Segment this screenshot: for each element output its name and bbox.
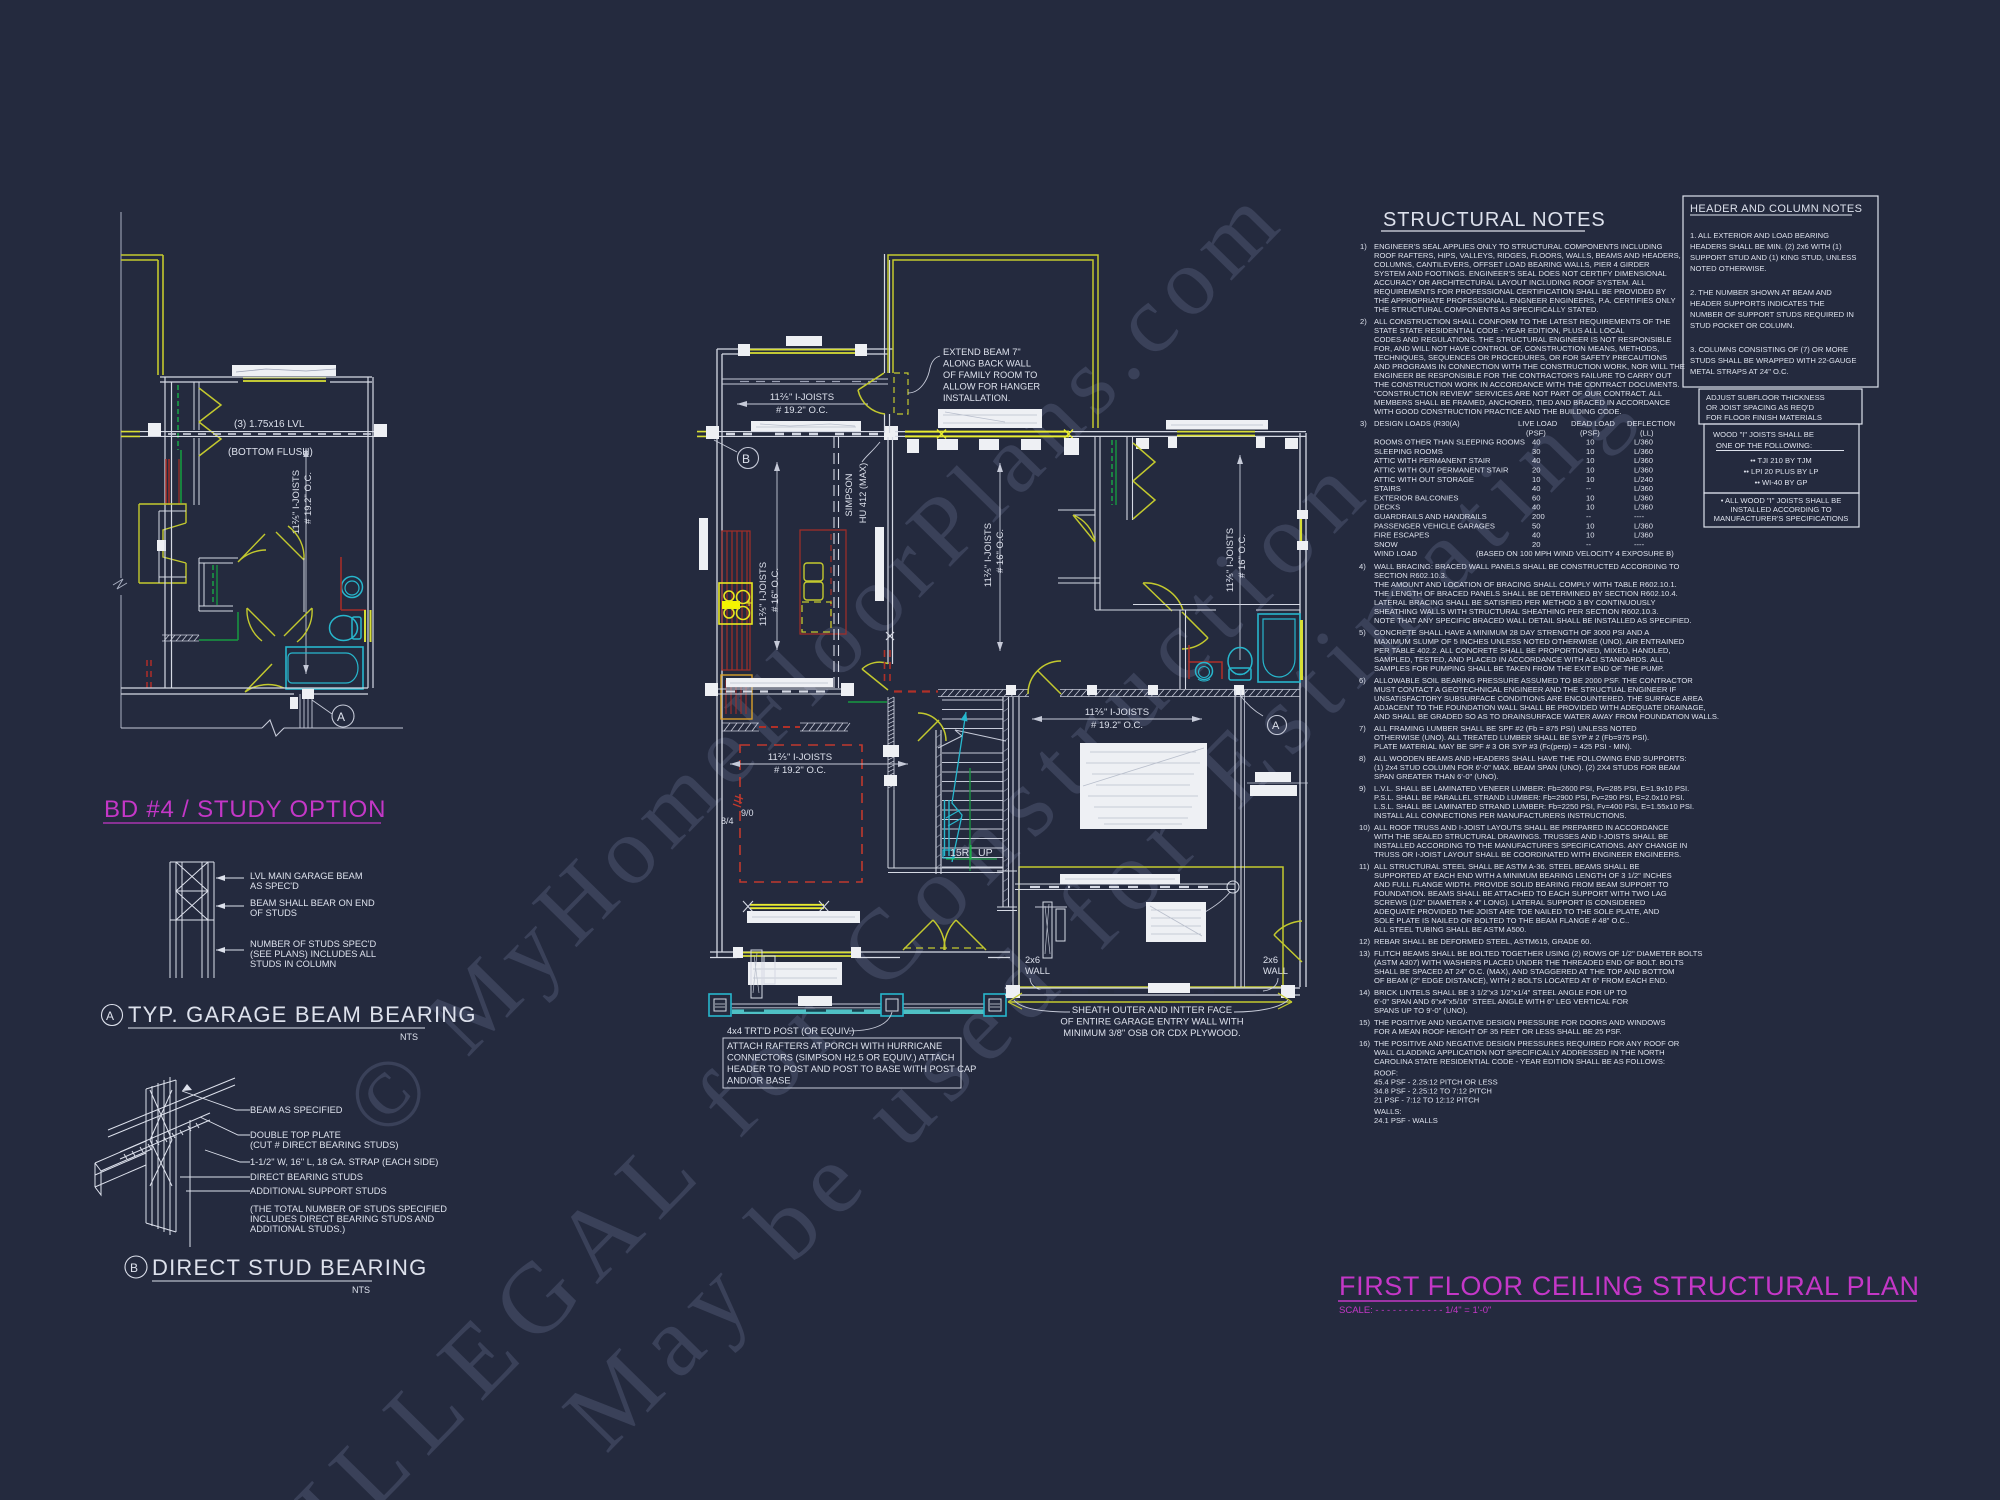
svg-text:24.1 PSF - WALLS: 24.1 PSF - WALLS [1374,1116,1438,1125]
svg-text:# 16" O.C.: # 16" O.C. [995,529,1006,573]
svg-text:STRUCTURAL NOTES: STRUCTURAL NOTES [1383,209,1606,231]
svg-text:SYSTEM AND FOOTINGS. ENGINEER: SYSTEM AND FOOTINGS. ENGINEER'S SEAL DOE… [1374,269,1667,278]
svg-text:L.V.L. SHALL BE LAMINATED VENE: L.V.L. SHALL BE LAMINATED VENEER LUMBER:… [1374,784,1689,793]
svg-text:3. COLUMNS CONSISTING OF (7) O: 3. COLUMNS CONSISTING OF (7) OR MORE [1690,345,1848,354]
svg-text:THE STRUCTURAL COMPONENTS AS S: THE STRUCTURAL COMPONENTS AS SPECIFICALL… [1374,305,1598,314]
svg-text:ACCURACY OR ARCHITECTURAL LAYO: ACCURACY OR ARCHITECTURAL LAYOUT INCLUDI… [1374,278,1645,287]
svg-text:7): 7) [1359,724,1366,733]
svg-text:ALL CONSTRUCTION SHALL CONFORM: ALL CONSTRUCTION SHALL CONFORM TO THE LA… [1374,317,1670,326]
svg-text:30: 30 [1532,447,1540,456]
svg-text:DIRECT STUD BEARING: DIRECT STUD BEARING [152,1255,427,1280]
svg-text:LATERAL BRACING SHALL BE SATIS: LATERAL BRACING SHALL BE SATISFIED PER M… [1374,598,1656,607]
svg-text:ATTIC WITH PERMANENT STAIR: ATTIC WITH PERMANENT STAIR [1374,456,1491,465]
svg-text:B: B [130,1261,138,1275]
svg-text:WIND LOAD: WIND LOAD [1374,549,1418,558]
svg-text:# 19.2" O.C.: # 19.2" O.C. [776,405,828,416]
svg-text:(THE TOTAL NUMBER OF STUDS SPE: (THE TOTAL NUMBER OF STUDS SPECIFIED [250,1204,447,1214]
svg-text:SCREWS (1/2" DIAMETER x 4" LON: SCREWS (1/2" DIAMETER x 4" LONG). LATERA… [1374,898,1646,907]
svg-text:40: 40 [1532,531,1540,540]
svg-text:PER TABLE 402.2. ALL CONCRETE: PER TABLE 402.2. ALL CONCRETE SHALL BE P… [1374,646,1671,655]
svg-text:WALLS:: WALLS: [1374,1107,1402,1116]
svg-text:10: 10 [1586,475,1594,484]
svg-text:2. THE NUMBER SHOWN AT BEAM AN: 2. THE NUMBER SHOWN AT BEAM AND [1690,288,1832,297]
svg-text:L/360: L/360 [1634,484,1653,493]
svg-text:FOR FLOOR FINISH MATERIALS: FOR FLOOR FINISH MATERIALS [1706,413,1822,422]
svg-text:•• LPI 20 PLUS BY LP: •• LPI 20 PLUS BY LP [1744,467,1819,476]
svg-text:ADEQUATE PROVIDED THE JOIST AR: ADEQUATE PROVIDED THE JOIST ARE TOE NAIL… [1374,907,1660,916]
svg-text:2x6: 2x6 [1263,955,1278,965]
svg-text:(LL): (LL) [1640,428,1654,437]
svg-text:OF BEAM (2" EDGE DISTANCE), WI: OF BEAM (2" EDGE DISTANCE), WITH 2 BOLTS… [1374,976,1667,985]
svg-text:DIRECT BEARING STUDS: DIRECT BEARING STUDS [250,1172,363,1182]
svg-text:CONNECTORS (SIMPSON H2.5 OR EQ: CONNECTORS (SIMPSON H2.5 OR EQUIV.) ATTA… [727,1053,954,1063]
svg-text:AND SHALL BE GRADED SO AS TO D: AND SHALL BE GRADED SO AS TO DRAINSURFAC… [1374,712,1719,721]
svg-text:TRUSS OR I-JOIST LAYOUT SHALL: TRUSS OR I-JOIST LAYOUT SHALL BE COORDIN… [1374,850,1681,859]
svg-text:HEADERS SHALL BE MIN. (2) 2x6: HEADERS SHALL BE MIN. (2) 2x6 WITH (1) [1690,242,1842,251]
svg-text:9/0: 9/0 [741,808,754,818]
svg-text:LVL MAIN GARAGE BEAM: LVL MAIN GARAGE BEAM [250,871,363,881]
svg-text:11⅖" I-JOISTS: 11⅖" I-JOISTS [758,562,769,626]
svg-text:FIRE ESCAPES: FIRE ESCAPES [1374,531,1429,540]
svg-text:NOTED OTHERWISE.: NOTED OTHERWISE. [1690,264,1767,273]
svg-text:9): 9) [1359,784,1366,793]
svg-text:WITH THE SEALED STRUCTURAL DRA: WITH THE SEALED STRUCTURAL DRAWINGS. TRU… [1374,832,1668,841]
svg-text:(CUT # DIRECT BEARING STUDS): (CUT # DIRECT BEARING STUDS) [250,1140,398,1150]
svg-text:A: A [337,710,345,724]
svg-text:45.4 PSF - 2.25:12 PITCH OR LE: 45.4 PSF - 2.25:12 PITCH OR LESS [1374,1078,1498,1087]
svg-text:3): 3) [1360,419,1367,428]
svg-text:13): 13) [1359,949,1370,958]
svg-text:ATTACH RAFTERS AT PORCH WITH H: ATTACH RAFTERS AT PORCH WITH HURRICANE [727,1041,942,1051]
svg-text:60: 60 [1532,493,1540,502]
svg-text:10: 10 [1532,475,1540,484]
svg-text:L/360: L/360 [1634,503,1653,512]
svg-text:21 PSF - 7:12 TO 12:12 PITCH: 21 PSF - 7:12 TO 12:12 PITCH [1374,1096,1479,1105]
svg-text:NTS: NTS [352,1285,370,1295]
svg-text:11⅖" I-JOISTS: 11⅖" I-JOISTS [983,523,994,587]
svg-text:METAL STRAPS AT 24" O.C.: METAL STRAPS AT 24" O.C. [1690,367,1789,376]
svg-text:L/360: L/360 [1634,447,1653,456]
svg-text:ENGINEER BE RESPONSIBLE FOR TH: ENGINEER BE RESPONSIBLE FOR THE CONTRACT… [1374,371,1672,380]
svg-text:HU 412 (MAX): HU 412 (MAX) [858,463,868,523]
svg-text:L/360: L/360 [1634,466,1653,475]
svg-text:WALL: WALL [1025,966,1050,976]
svg-text:(PSF): (PSF) [1580,428,1600,437]
svg-text:SAMPLES FOR PUMPING SHALL BE T: SAMPLES FOR PUMPING SHALL BE TAKEN FROM … [1374,664,1664,673]
svg-text:MUST CONTACT A GEOTECHNICAL EN: MUST CONTACT A GEOTECHNICAL ENGINEER AND… [1374,685,1677,694]
svg-text:(BOTTOM FLUSH): (BOTTOM FLUSH) [228,447,313,458]
svg-text:STUDS IN COLUMN: STUDS IN COLUMN [250,959,336,969]
svg-text:L/240: L/240 [1634,475,1653,484]
svg-text:SCALE: - - - - - - - - - - -: SCALE: - - - - - - - - - - - - 1/4" = 1'… [1339,1305,1491,1316]
svg-text:DOUBLE TOP PLATE: DOUBLE TOP PLATE [250,1130,341,1140]
svg-text:(SEE PLANS) INCLUDES ALL: (SEE PLANS) INCLUDES ALL [250,949,376,959]
svg-text:ALL WOODEN BEAMS AND HEADERS S: ALL WOODEN BEAMS AND HEADERS SHALL HAVE … [1374,754,1687,763]
svg-text:11⅖" I-JOISTS: 11⅖" I-JOISTS [770,392,834,403]
svg-text:BRICK LINTELS SHALL BE 3 1/2"x: BRICK LINTELS SHALL BE 3 1/2"x3 1/2"x1/4… [1374,988,1627,997]
svg-text:--: -- [1586,484,1592,493]
svg-text:NOTE THAT ANY SPECIFIC BRACED: NOTE THAT ANY SPECIFIC BRACED WALL DETAI… [1374,616,1691,625]
svg-text:INSTALLED ACCORDING TO: INSTALLED ACCORDING TO [1730,505,1831,514]
svg-text:----: ---- [1634,512,1645,521]
svg-text:ATTIC WITH OUT STORAGE: ATTIC WITH OUT STORAGE [1374,475,1474,484]
svg-text:----: ---- [1634,540,1645,549]
svg-text:SHALL BE SPACED AT 24" O.C. (M: SHALL BE SPACED AT 24" O.C. (MAX), AND S… [1374,967,1674,976]
svg-text:HEADER TO POST AND POST TO BAS: HEADER TO POST AND POST TO BASE WITH POS… [727,1064,976,1074]
svg-text:# 19.2" O.C.: # 19.2" O.C. [774,765,826,776]
svg-text:15): 15) [1359,1018,1370,1027]
svg-text:11⅖" I-JOISTS: 11⅖" I-JOISTS [768,752,832,763]
svg-text:UNSATISFACTORY SUBSURFACE COND: UNSATISFACTORY SUBSURFACE CONDITIONS ARE… [1374,694,1704,703]
svg-text:1. ALL EXTERIOR AND LOAD BEARI: 1. ALL EXTERIOR AND LOAD BEARING [1690,231,1829,240]
svg-text:INCLUDES DIRECT BEARING STUDS: INCLUDES DIRECT BEARING STUDS AND [250,1214,435,1224]
svg-text:GUARDRAILS AND HANDRAILS: GUARDRAILS AND HANDRAILS [1374,512,1487,521]
svg-text:40: 40 [1532,438,1540,447]
svg-text:INSTALLATION.: INSTALLATION. [943,393,1010,403]
svg-text:20: 20 [1532,466,1540,475]
svg-text:INSTALL ALL CONNECTIONS PER MA: INSTALL ALL CONNECTIONS PER MANUFACTURER… [1374,811,1626,820]
svg-text:ROOMS OTHER THAN SLEEPING ROOM: ROOMS OTHER THAN SLEEPING ROOMS [1374,438,1525,447]
svg-text:# 19.2" O.C.: # 19.2" O.C. [1091,720,1143,731]
svg-text:11⅖" I-JOISTS: 11⅖" I-JOISTS [1225,528,1236,592]
svg-text:AS SPEC'D: AS SPEC'D [250,881,299,891]
svg-text:SECTION R602.10.3.: SECTION R602.10.3. [1374,571,1447,580]
svg-text:HEADER SUPPORTS INDICATES THE: HEADER SUPPORTS INDICATES THE [1690,299,1825,308]
svg-text:4): 4) [1359,562,1366,571]
svg-text:34.8 PSF - 2.25:12 TO 7:12 PIT: 34.8 PSF - 2.25:12 TO 7:12 PITCH [1374,1087,1492,1096]
svg-text:A: A [106,1009,114,1023]
svg-text:"CONSTRUCTION REVIEW" SERVICES: "CONSTRUCTION REVIEW" SERVICES ARE NOT P… [1374,389,1662,398]
svg-text:ALONG BACK WALL: ALONG BACK WALL [943,359,1031,369]
svg-text:(1) 2x4 STUD COLUMN FOR 6'-0": (1) 2x4 STUD COLUMN FOR 6'-0" MAX. BEAM … [1374,763,1680,772]
svg-text:UP: UP [978,847,993,859]
svg-text:THE AMOUNT AND LOCATION OF BRA: THE AMOUNT AND LOCATION OF BRACING SHALL… [1374,580,1677,589]
svg-text:STUD POCKET OR COLUMN.: STUD POCKET OR COLUMN. [1690,321,1795,330]
svg-text:WALL CLADDING APPLICATION NOT: WALL CLADDING APPLICATION NOT SPECIFICAL… [1374,1048,1665,1057]
svg-text:FLITCH BEAMS SHALL BE BOLTED T: FLITCH BEAMS SHALL BE BOLTED TOGETHER US… [1374,949,1702,958]
svg-text:6'-0" SPAN AND 6"x4"x5/16" STE: 6'-0" SPAN AND 6"x4"x5/16" STEEL ANGLE W… [1374,997,1629,1006]
svg-text:(PSF): (PSF) [1526,428,1546,437]
svg-text:THE POSITIVE AND NEGATIVE DESI: THE POSITIVE AND NEGATIVE DESIGN PRESSUR… [1374,1018,1665,1027]
svg-text:ALL ROOF TRUSS AND I-JOIST LAY: ALL ROOF TRUSS AND I-JOIST LAYOUTS SHALL… [1374,823,1669,832]
svg-text:NTS: NTS [400,1032,418,1042]
svg-text:# 16" O.C.: # 16" O.C. [1237,534,1248,578]
svg-text:20: 20 [1532,540,1540,549]
svg-text:SNOW: SNOW [1374,540,1398,549]
svg-text:WALL: WALL [1263,966,1288,976]
svg-text:•• WI-40 BY GP: •• WI-40 BY GP [1755,478,1808,487]
svg-text:1): 1) [1360,242,1367,251]
svg-text:CODES AND REGULATIONS. THE STR: CODES AND REGULATIONS. THE STRUCTURAL EN… [1374,335,1672,344]
svg-text:COLUMNS, CANTILEVERS, OFFSET L: COLUMNS, CANTILEVERS, OFFSET LOAD BEARIN… [1374,260,1650,269]
svg-text:10): 10) [1359,823,1370,832]
svg-text:CAROLINA STATE RESIDENTIAL COD: CAROLINA STATE RESIDENTIAL CODE - YEAR E… [1374,1057,1665,1066]
svg-text:L/360: L/360 [1634,438,1653,447]
svg-text:ROOF RAFTERS, HIPS, VALLEYS, R: ROOF RAFTERS, HIPS, VALLEYS, RIDGES, FLO… [1374,251,1681,260]
svg-text:BEAM AS SPECIFIED: BEAM AS SPECIFIED [250,1105,343,1115]
svg-text:4x4 TRT'D POST (OR EQUIV.): 4x4 TRT'D POST (OR EQUIV.) [727,1026,855,1036]
svg-text:15R: 15R [950,847,970,859]
svg-text:L/360: L/360 [1634,456,1653,465]
svg-text:STATE STATE RESIDENTIAL CODE -: STATE STATE RESIDENTIAL CODE - YEAR EDIT… [1374,326,1625,335]
svg-text:L/360: L/360 [1634,531,1653,540]
svg-text:ALL STRUCTURAL STEEL SHALL BE: ALL STRUCTURAL STEEL SHALL BE ASTM A-36.… [1374,862,1639,871]
svg-text:THE CONSTRUCTION WORK IN ACCOR: THE CONSTRUCTION WORK IN ACCORDANCE WITH… [1374,380,1680,389]
svg-text:WITH GOOD CONSTRUCTION PRACTIC: WITH GOOD CONSTRUCTION PRACTICE AND THE … [1374,407,1622,416]
svg-text:10: 10 [1586,521,1594,530]
svg-text:ADDITIONAL STUDS.): ADDITIONAL STUDS.) [250,1224,345,1234]
svg-text:MEMBERS SHALL BE FRAMED, ANCHO: MEMBERS SHALL BE FRAMED, ANCHORED, TIED … [1374,398,1670,407]
svg-text:FIRST FLOOR CEILING STRUCTURAL: FIRST FLOOR CEILING STRUCTURAL PLAN [1339,1271,1920,1301]
svg-text:40: 40 [1532,503,1540,512]
svg-text:12): 12) [1359,937,1370,946]
svg-text:L/360: L/360 [1634,521,1653,530]
svg-text:AND FULL FLANGE WIDTH. PROVIDE: AND FULL FLANGE WIDTH. PROVIDE SOLID BEA… [1374,880,1669,889]
svg-text:THE POSITIVE AND NEGATIVE DESI: THE POSITIVE AND NEGATIVE DESIGN PRESSUR… [1374,1039,1680,1048]
svg-text:(BASED ON 100 MPH WIND VELOCIT: (BASED ON 100 MPH WIND VELOCITY 4 EXPOSU… [1476,549,1674,558]
svg-text:(3) 1.75x16 LVL: (3) 1.75x16 LVL [234,419,305,430]
svg-text:11⅖" I-JOISTS: 11⅖" I-JOISTS [291,470,302,534]
svg-text:--: -- [1586,540,1592,549]
svg-text:ENGINEER'S SEAL APPLIES ONLY T: ENGINEER'S SEAL APPLIES ONLY TO STRUCTUR… [1374,242,1663,251]
svg-text:1-1/2" W, 16" L, 18 GA. STRAP: 1-1/2" W, 16" L, 18 GA. STRAP (EACH SIDE… [250,1157,438,1167]
svg-text:SOLE PLATE IS NAILED OR BOLTED: SOLE PLATE IS NAILED OR BOLTED TO THE BE… [1374,916,1629,925]
svg-text:6): 6) [1359,676,1366,685]
svg-text:40: 40 [1532,484,1540,493]
svg-text:16): 16) [1359,1039,1370,1048]
svg-text:--: -- [1586,512,1592,521]
svg-text:2x6: 2x6 [1025,955,1040,965]
svg-text:WALL BRACING: BRACED WALL PAN: WALL BRACING: BRACED WALL PANELS SHALL B… [1374,562,1679,571]
svg-text:(ASTM A307) WITH WASHERS PLACE: (ASTM A307) WITH WASHERS PLACED UNDER TH… [1374,958,1684,967]
svg-text:# 16" O.C.: # 16" O.C. [770,568,781,612]
svg-text:SPAN GREATER THAN 6'-0" (UNO).: SPAN GREATER THAN 6'-0" (UNO). [1374,772,1498,781]
svg-text:WOOD "I" JOISTS SHALL BE: WOOD "I" JOISTS SHALL BE [1713,430,1814,439]
svg-text:TECHNIQUES, SEQUENCES OR PROCE: TECHNIQUES, SEQUENCES OR PROCEDURES, OR … [1374,353,1667,362]
svg-text:THE LENGTH OF BRACED PANELS SH: THE LENGTH OF BRACED PANELS SHALL BE DET… [1374,589,1678,598]
svg-text:11): 11) [1359,862,1370,871]
svg-text:INSTALLED ACCORDING TO THE MAN: INSTALLED ACCORDING TO THE MANUFACTURE'S… [1374,841,1687,850]
svg-text:HEADER AND COLUMN NOTES: HEADER AND COLUMN NOTES [1690,203,1862,215]
svg-text:SLEEPING ROOMS: SLEEPING ROOMS [1374,447,1443,456]
svg-text:L.S.L. SHALL BE LAMINATED STRA: L.S.L. SHALL BE LAMINATED STRAND LUMBER:… [1374,802,1694,811]
svg-text:50: 50 [1532,521,1540,530]
svg-text:FOUNDATION. BEAMS SHALL BE AT: FOUNDATION. BEAMS SHALL BE ATTACHED TO E… [1374,889,1667,898]
svg-text:FOR, AND WILL NOT HAVE CONTROL: FOR, AND WILL NOT HAVE CONTROL OF, CONST… [1374,344,1659,353]
svg-text:SPANS UP TO 9'-0" (UNO).: SPANS UP TO 9'-0" (UNO). [1374,1006,1467,1015]
svg-text:DEFLECTION: DEFLECTION [1627,419,1675,428]
svg-text:REBAR SHALL BE DEFORMED STEEL,: REBAR SHALL BE DEFORMED STEEL, ASTM615, … [1374,937,1591,946]
svg-text:10: 10 [1586,438,1594,447]
svg-text:OF FAMILY ROOM TO: OF FAMILY ROOM TO [943,370,1037,380]
svg-text:OR JOIST SPACING AS REQ'D: OR JOIST SPACING AS REQ'D [1706,403,1814,412]
svg-text:2): 2) [1360,317,1367,326]
svg-text:•• TJI 210 BY TJM: •• TJI 210 BY TJM [1750,456,1811,465]
svg-text:EXTERIOR BALCONIES: EXTERIOR BALCONIES [1374,493,1458,502]
svg-text:THE APPROPRIATE PROFESSIONAL.: THE APPROPRIATE PROFESSIONAL. ENGNEER EN… [1374,296,1676,305]
svg-text:OTHERWISE (UNO). ALL TREATED L: OTHERWISE (UNO). ALL TREATED LUMBER SHAL… [1374,733,1649,742]
svg-text:• ALL WOOD "I" JOISTS SHALL BE: • ALL WOOD "I" JOISTS SHALL BE [1721,496,1842,505]
svg-text:SHEATHING WALLS WITH STRUCTURA: SHEATHING WALLS WITH STRUCTURAL SHEATHIN… [1374,607,1658,616]
svg-text:ROOF:: ROOF: [1374,1069,1398,1078]
svg-text:NUMBER OF SUPPORT STUDS REQUIR: NUMBER OF SUPPORT STUDS REQUIRED IN [1690,310,1854,319]
svg-text:11⅖" I-JOISTS: 11⅖" I-JOISTS [1085,707,1149,718]
svg-text:10: 10 [1586,466,1594,475]
svg-text:ADJACENT TO THE FOUNDATION WAL: ADJACENT TO THE FOUNDATION WALL SHALL BE… [1374,703,1706,712]
svg-text:TYP. GARAGE BEAM BEARING: TYP. GARAGE BEAM BEARING [128,1002,477,1027]
svg-text:10: 10 [1586,531,1594,540]
svg-text:ONE OF THE FOLLOWING:: ONE OF THE FOLLOWING: [1716,441,1812,450]
svg-text:OF STUDS: OF STUDS [250,908,297,918]
svg-text:14): 14) [1359,988,1370,997]
svg-text:AND PROGRAMS IN CONNECTION WIT: AND PROGRAMS IN CONNECTION WITH THE CONS… [1374,362,1685,371]
svg-text:L/360: L/360 [1634,493,1653,502]
svg-text:DECKS: DECKS [1374,503,1400,512]
svg-text:ALLOW FOR HANGER: ALLOW FOR HANGER [943,382,1040,392]
svg-text:FOR A MEAN ROOF HEIGHT OF 35 F: FOR A MEAN ROOF HEIGHT OF 35 FEET OR LES… [1374,1027,1622,1036]
svg-text:B: B [742,452,750,466]
svg-text:P.S.L. SHALL BE PARALLEL STRAN: P.S.L. SHALL BE PARALLEL STRAND LUMBER: … [1374,793,1684,802]
svg-text:A: A [1272,720,1280,732]
svg-text:10: 10 [1586,447,1594,456]
svg-text:MINIMUM 3/8" OSB OR CDX PLYWOO: MINIMUM 3/8" OSB OR CDX PLYWOOD. [1063,1028,1240,1039]
svg-text:DESIGN LOADS (R30(A): DESIGN LOADS (R30(A) [1374,419,1460,428]
svg-text:SUPPORT STUD AND (1) KING STUD: SUPPORT STUD AND (1) KING STUD, UNLESS [1690,253,1856,262]
svg-text:8/4: 8/4 [721,816,734,826]
svg-text:ADJUST SUBFLOOR THICKNESS: ADJUST SUBFLOOR THICKNESS [1706,393,1825,402]
svg-text:DEAD LOAD: DEAD LOAD [1571,419,1615,428]
svg-text:ATTIC WITH OUT PERMANENT STAIR: ATTIC WITH OUT PERMANENT STAIR [1374,466,1509,475]
svg-text:PLATE MATERIAL MAY BE SPF # 3: PLATE MATERIAL MAY BE SPF # 3 OR SYP #3 … [1374,742,1632,751]
svg-text:40: 40 [1532,456,1540,465]
svg-text:10: 10 [1586,493,1594,502]
svg-text:200: 200 [1532,512,1545,521]
svg-text:ADDITIONAL SUPPORT STUDS: ADDITIONAL SUPPORT STUDS [250,1186,387,1196]
svg-text:CONCRETE SHALL HAVE A MINIMUM: CONCRETE SHALL HAVE A MINIMUM 28 DAY STR… [1374,628,1650,637]
svg-text:# 19.2" O.C.: # 19.2" O.C. [303,472,314,524]
svg-text:STAIRS: STAIRS [1374,484,1401,493]
svg-text:EXTEND BEAM 7": EXTEND BEAM 7" [943,347,1021,357]
svg-text:MAXIMUM SLUMP OF 5 INCHES UNLE: MAXIMUM SLUMP OF 5 INCHES UNLESS NOTED O… [1374,637,1685,646]
svg-text:8): 8) [1359,754,1366,763]
svg-text:SHEATH OUTER AND INTTER FACE: SHEATH OUTER AND INTTER FACE [1072,1005,1232,1016]
svg-text:AND/OR BASE: AND/OR BASE [727,1076,791,1086]
svg-text:ALLOWABLE SOIL BEARING PRESSUR: ALLOWABLE SOIL BEARING PRESSURE ASSUMED … [1374,676,1693,685]
svg-text:MANUFACTURER'S SPECIFICATIONS: MANUFACTURER'S SPECIFICATIONS [1714,514,1849,523]
svg-text:REQUIREMENTS FOR PROFESSIONAL: REQUIREMENTS FOR PROFESSIONAL CERTIFICAT… [1374,287,1666,296]
svg-text:SUPPORTED AT EACH END WITH A M: SUPPORTED AT EACH END WITH A MINIMUM BEA… [1374,871,1672,880]
svg-text:NUMBER OF STUDS SPEC'D: NUMBER OF STUDS SPEC'D [250,939,377,949]
svg-text:BD #4 / STUDY OPTION: BD #4 / STUDY OPTION [104,796,386,823]
svg-text:PASSENGER VEHICLE GARAGES: PASSENGER VEHICLE GARAGES [1374,521,1495,530]
svg-text:BEAM SHALL BEAR ON END: BEAM SHALL BEAR ON END [250,898,375,908]
svg-text:ALL FRAMING LUMBER SHALL BE SP: ALL FRAMING LUMBER SHALL BE SPF #2 (Fb =… [1374,724,1637,733]
svg-text:10: 10 [1586,503,1594,512]
svg-text:5): 5) [1359,628,1366,637]
svg-text:LIVE LOAD: LIVE LOAD [1518,419,1558,428]
svg-text:STUDS SHALL BE WRAPPED WITH 22: STUDS SHALL BE WRAPPED WITH 22-GAUGE [1690,356,1856,365]
svg-text:SIMPSON: SIMPSON [844,474,854,517]
svg-text:OF ENTIRE GARAGE ENTRY WALL WI: OF ENTIRE GARAGE ENTRY WALL WITH [1060,1017,1243,1028]
svg-text:10: 10 [1586,456,1594,465]
svg-text:SAMPLED, TESTED, AND PLACED IN: SAMPLED, TESTED, AND PLACED IN ACCORDANC… [1374,655,1664,664]
svg-text:ALL STEEL TUBING SHALL BE ASTM: ALL STEEL TUBING SHALL BE ASTM A500. [1374,925,1526,934]
